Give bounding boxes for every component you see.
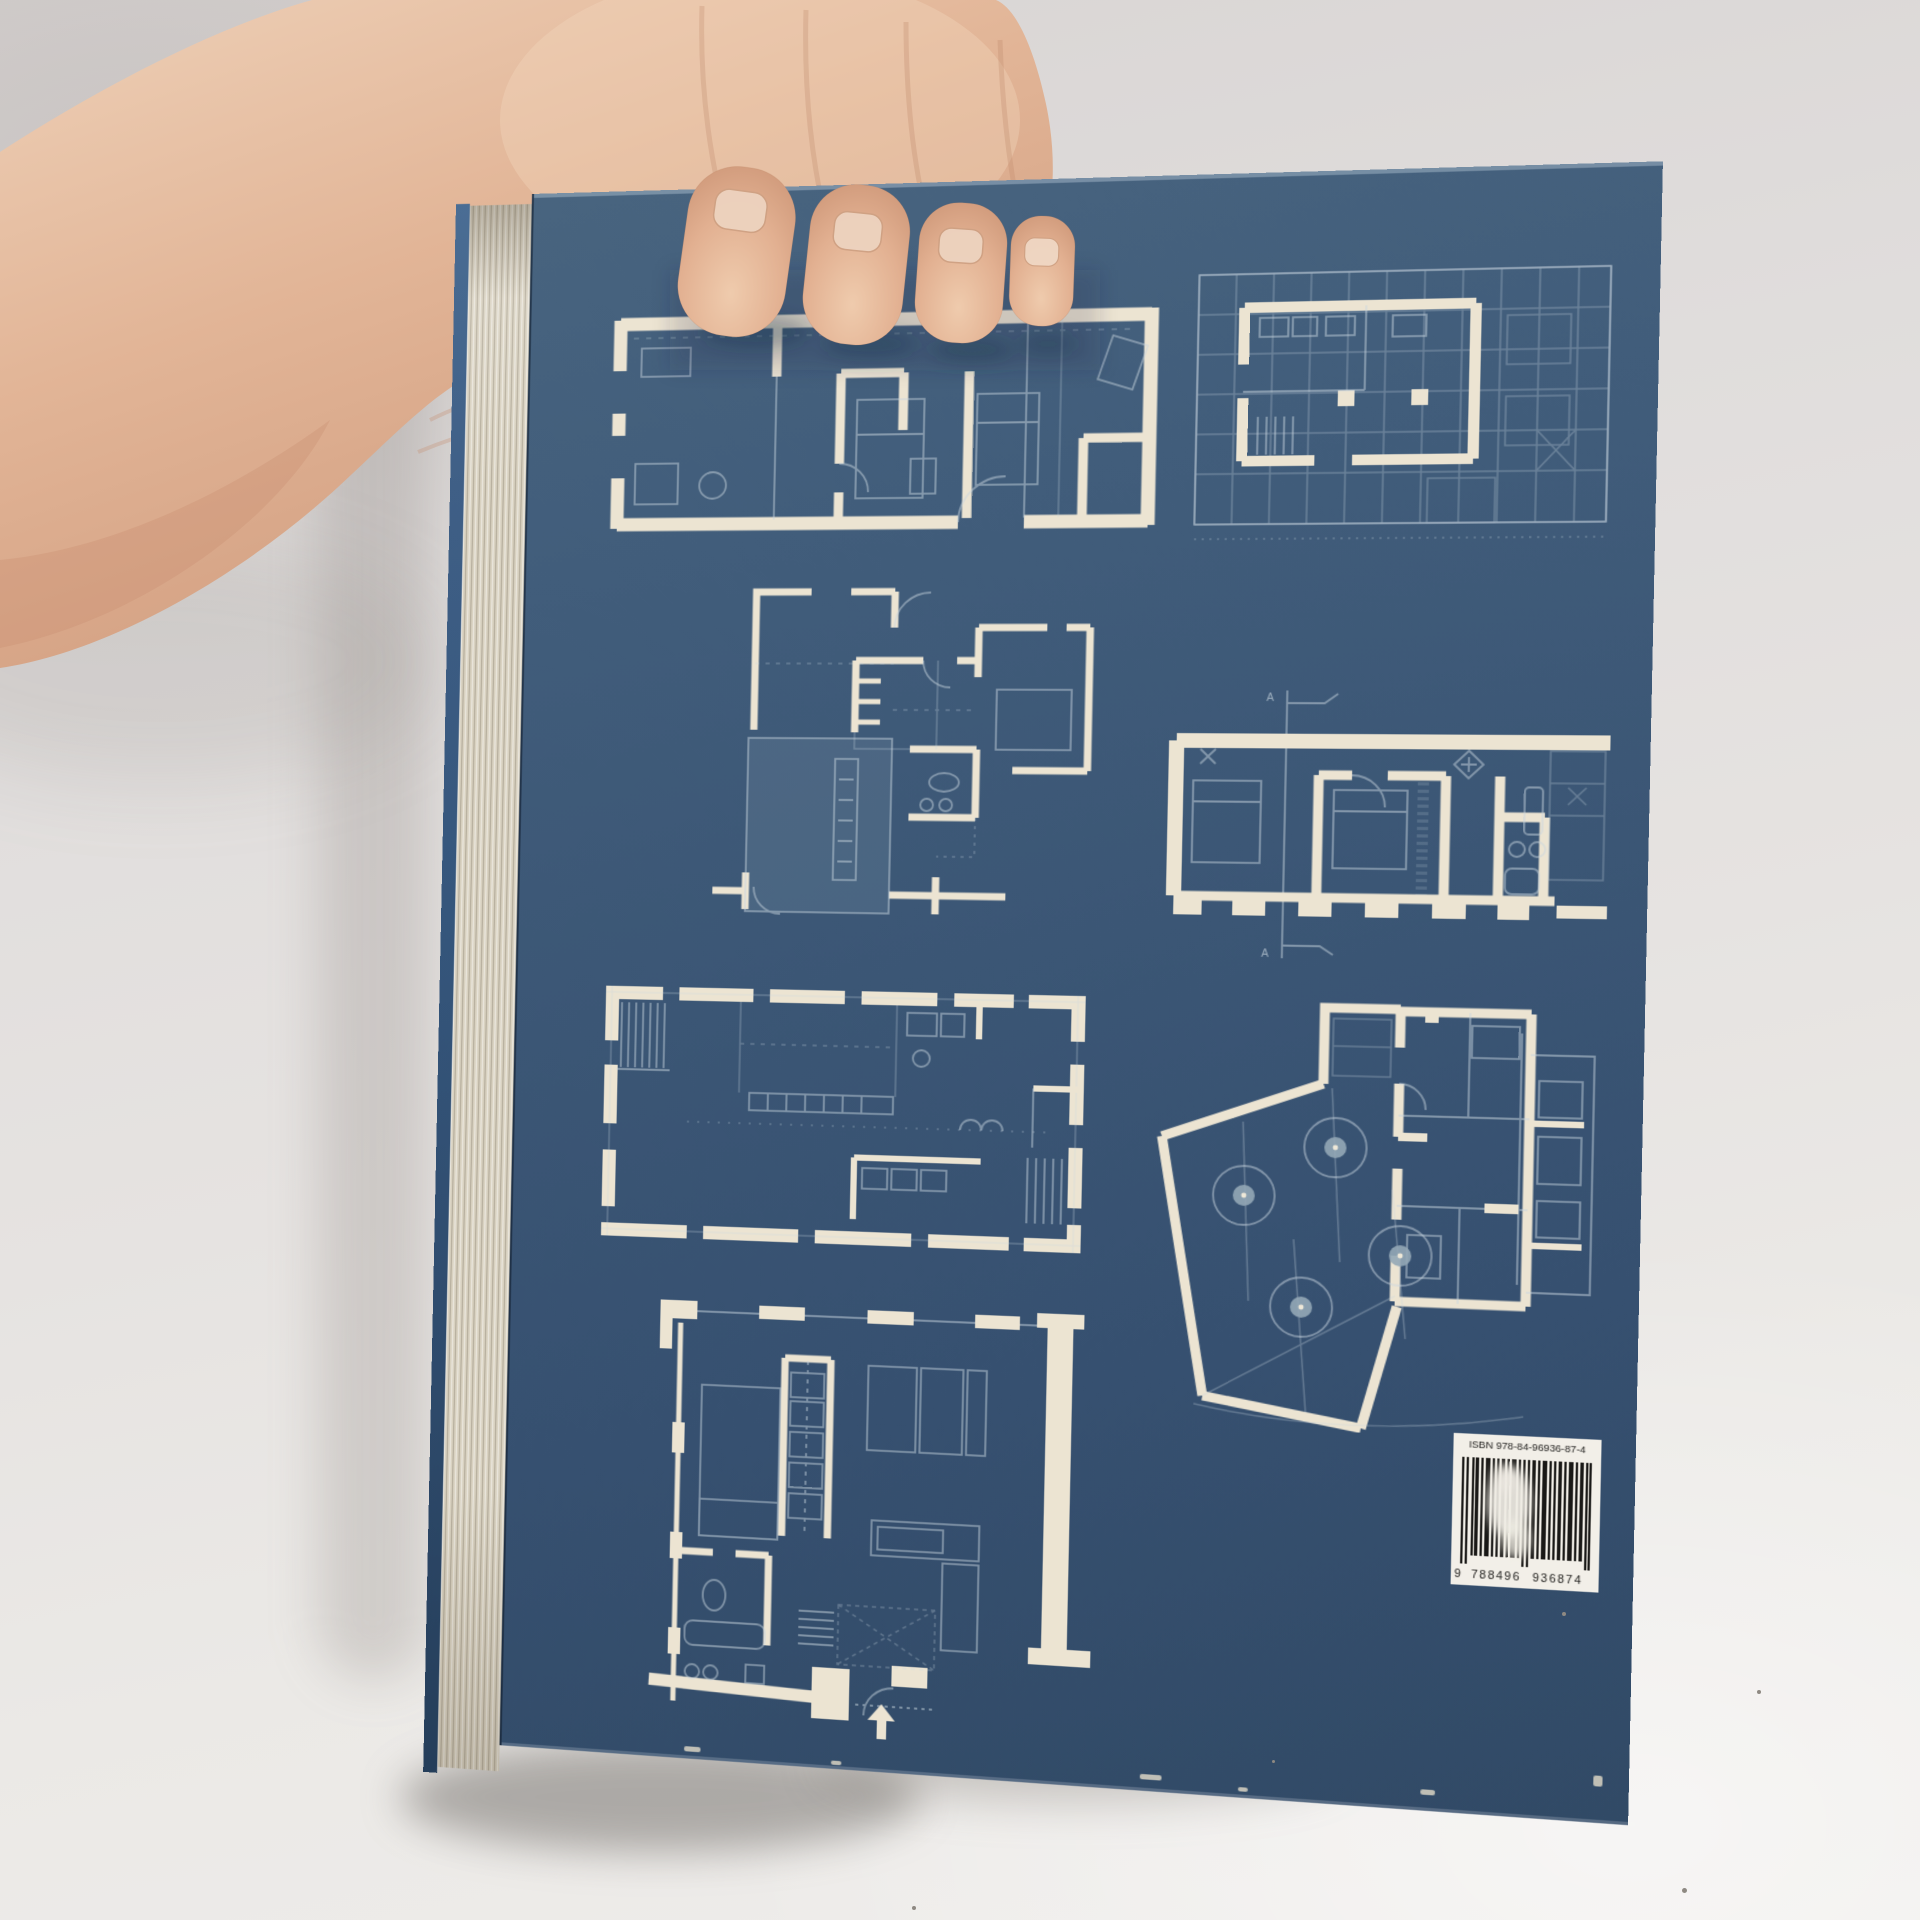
isbn-barcode: ISBN 978-84-96936-87-4 9 788496 93687 <box>1451 1433 1602 1593</box>
plan5-interior <box>614 1002 1065 1224</box>
floor-plan-building-unit <box>1183 251 1623 565</box>
fingernail-icon <box>712 187 769 234</box>
book: A A <box>424 161 1661 1825</box>
fingertips-over-cover <box>600 120 1120 410</box>
plan6-annex <box>1526 1055 1595 1295</box>
floor-plan-studio-entry <box>621 1292 1110 1755</box>
floor-plan-open-loft <box>593 977 1095 1261</box>
entry-arrow-icon <box>867 1703 895 1740</box>
back-cover: A A <box>500 161 1663 1825</box>
plan7-pillars <box>652 1297 1097 1736</box>
floor-plan-courtyard-trees <box>1132 983 1610 1444</box>
plan7-storage-x <box>837 1605 935 1671</box>
plan7-furniture <box>683 1356 987 1724</box>
floor-plan-offset-house <box>693 565 1100 945</box>
fingernail-icon <box>938 227 984 264</box>
plan5-wall-segments <box>601 986 1086 1254</box>
plan4-section-line <box>1282 690 1339 959</box>
fingertip-pinky <box>1008 215 1076 327</box>
section-label-top: A <box>1267 692 1275 704</box>
floor-plan-linear-apartment: A A <box>1163 688 1616 967</box>
plan4-terrace <box>1548 751 1606 880</box>
svg-text:9: 9 <box>1454 1568 1461 1580</box>
section-label-bottom: A <box>1261 948 1269 960</box>
plan2-unit-walls <box>1242 303 1477 461</box>
fingernail-icon <box>832 210 884 253</box>
plan6-walls <box>1156 1004 1532 1436</box>
fingernail-icon <box>1024 237 1059 266</box>
fingertip-ring <box>912 200 1010 346</box>
